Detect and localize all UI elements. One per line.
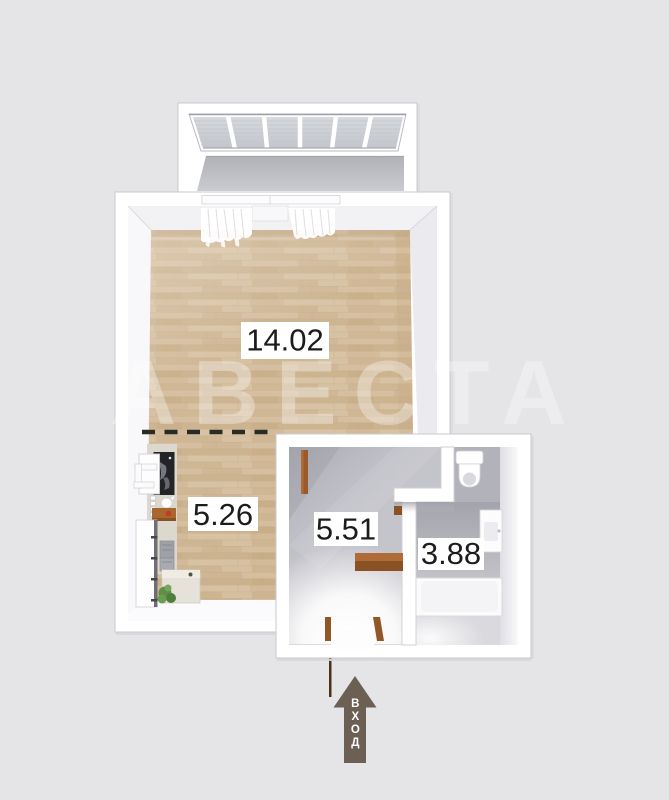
svg-text:5.26: 5.26 — [193, 497, 253, 532]
svg-text:В: В — [351, 698, 359, 710]
svg-text:О: О — [351, 724, 360, 736]
svg-text:3.88: 3.88 — [421, 536, 481, 571]
svg-text:Д: Д — [351, 737, 359, 749]
svg-text:АВЕСТА: АВЕСТА — [110, 343, 583, 444]
svg-text:5.51: 5.51 — [316, 512, 376, 547]
svg-text:Х: Х — [351, 711, 359, 723]
